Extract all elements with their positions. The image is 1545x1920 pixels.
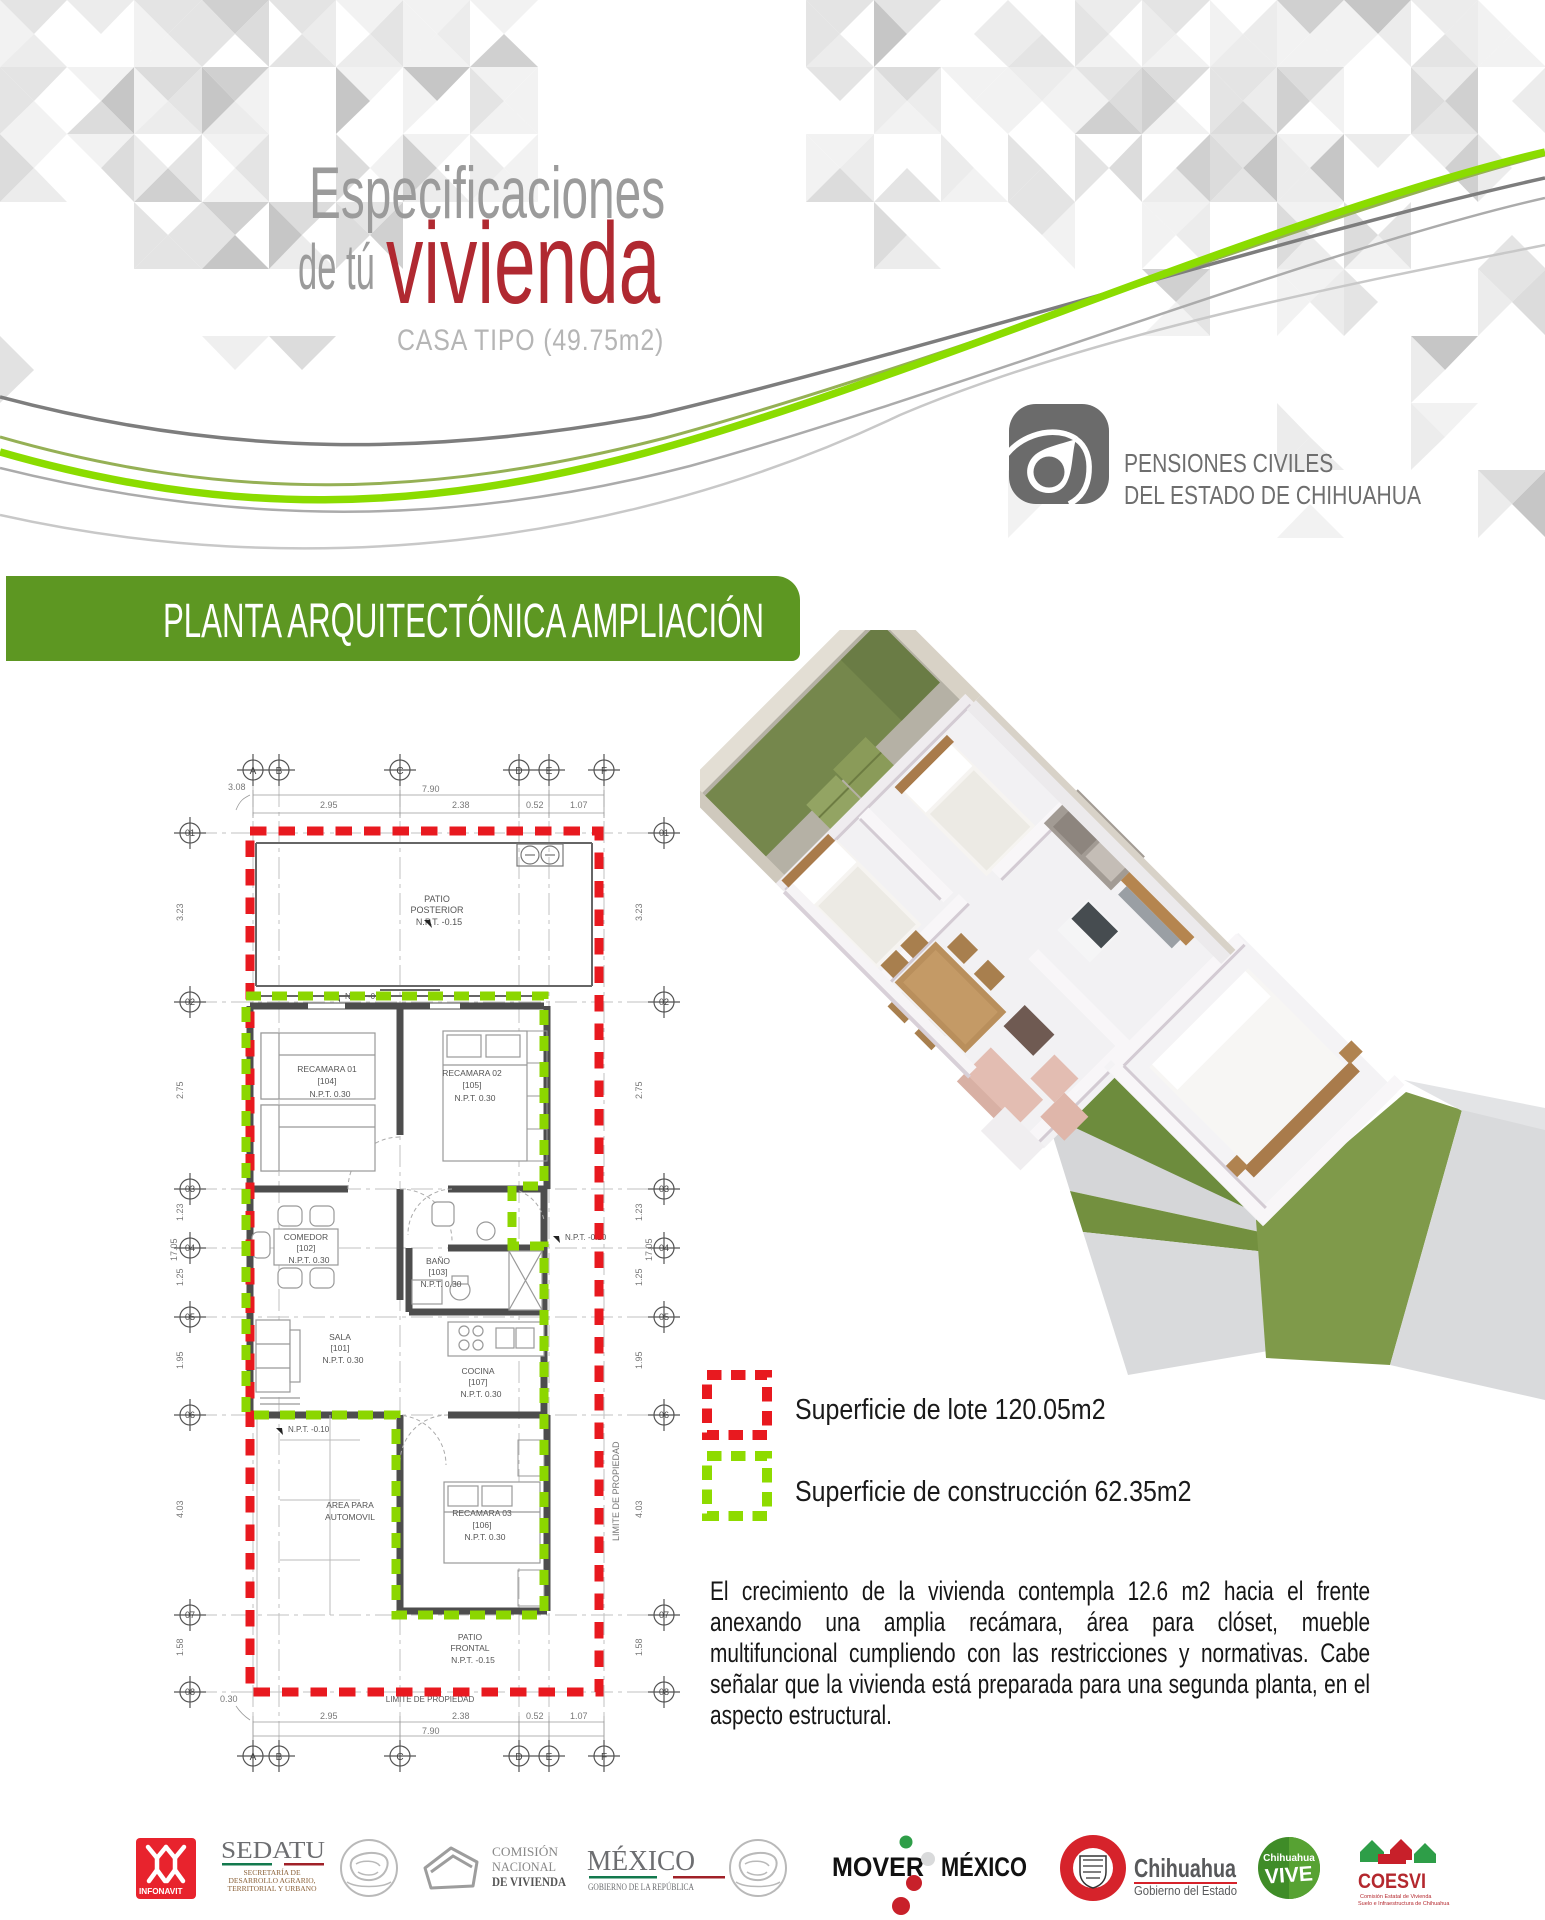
svg-text:2.95: 2.95 xyxy=(320,1711,338,1721)
svg-text:[106]: [106] xyxy=(473,1520,492,1530)
svg-text:Comisión Estatal de Vivienda: Comisión Estatal de Vivienda xyxy=(1360,1894,1432,1900)
svg-text:N.P.T. 0.30: N.P.T. 0.30 xyxy=(461,1389,502,1399)
svg-text:E: E xyxy=(546,1752,553,1763)
svg-text:05: 05 xyxy=(659,1312,669,1322)
svg-text:[103]: [103] xyxy=(429,1267,448,1277)
svg-text:Gobierno del Estado: Gobierno del Estado xyxy=(1134,1884,1237,1898)
svg-text:PATIO: PATIO xyxy=(458,1632,483,1642)
svg-text:B: B xyxy=(276,766,283,777)
svg-text:03: 03 xyxy=(659,1184,669,1194)
svg-text:TERRITORIAL Y URBANO: TERRITORIAL Y URBANO xyxy=(227,1884,317,1893)
svg-text:4.03: 4.03 xyxy=(634,1500,644,1518)
svg-text:AREA PARA: AREA PARA xyxy=(326,1500,374,1510)
svg-text:04: 04 xyxy=(185,1243,195,1253)
svg-text:0.52: 0.52 xyxy=(526,800,544,810)
svg-text:N.P.T. 0.30: N.P.T. 0.30 xyxy=(289,1255,330,1265)
svg-text:C: C xyxy=(396,766,403,777)
svg-text:NACIONAL: NACIONAL xyxy=(492,1859,556,1874)
svg-text:[107]: [107] xyxy=(469,1377,488,1387)
svg-text:17.05: 17.05 xyxy=(644,1238,654,1261)
svg-text:F: F xyxy=(601,766,607,777)
svg-text:1.07: 1.07 xyxy=(570,800,588,810)
svg-text:E: E xyxy=(546,766,553,777)
svg-text:A: A xyxy=(250,766,257,777)
svg-text:N.P.T. -0.10: N.P.T. -0.10 xyxy=(288,1425,330,1434)
svg-text:05: 05 xyxy=(185,1312,195,1322)
svg-text:3.23: 3.23 xyxy=(175,903,185,921)
svg-text:N.P.T. 0.30: N.P.T. 0.30 xyxy=(310,1089,351,1099)
svg-text:VIVE: VIVE xyxy=(1264,1862,1313,1888)
svg-text:RECAMARA 02: RECAMARA 02 xyxy=(442,1068,502,1078)
svg-text:06: 06 xyxy=(659,1410,669,1420)
svg-text:[105]: [105] xyxy=(463,1080,482,1090)
svg-text:03: 03 xyxy=(185,1184,195,1194)
svg-text:02: 02 xyxy=(659,997,669,1007)
svg-text:DE VIVIENDA: DE VIVIENDA xyxy=(492,1874,567,1889)
svg-text:[102]: [102] xyxy=(297,1243,316,1253)
svg-text:N.P.T. 0.30: N.P.T. 0.30 xyxy=(465,1532,506,1542)
svg-text:FRONTAL: FRONTAL xyxy=(450,1643,489,1653)
svg-text:1.07: 1.07 xyxy=(570,1711,588,1721)
svg-text:N.P.T. -0.15: N.P.T. -0.15 xyxy=(416,917,462,927)
svg-text:3.08: 3.08 xyxy=(228,782,246,792)
svg-text:04: 04 xyxy=(659,1243,669,1253)
svg-text:PENSIONES CIVILES: PENSIONES CIVILES xyxy=(1124,450,1333,479)
svg-text:1.58: 1.58 xyxy=(634,1638,644,1656)
svg-text:4.03: 4.03 xyxy=(175,1500,185,1518)
svg-text:01: 01 xyxy=(659,828,669,838)
svg-text:COMISIÓN: COMISIÓN xyxy=(492,1844,559,1859)
svg-text:0.30: 0.30 xyxy=(220,1694,238,1704)
svg-text:F: F xyxy=(601,1752,607,1763)
svg-text:08: 08 xyxy=(659,1687,669,1697)
svg-text:1.95: 1.95 xyxy=(175,1351,185,1369)
svg-text:Suelo e Infraestructura de Chi: Suelo e Infraestructura de Chihuahua xyxy=(1358,1901,1450,1907)
svg-text:2.75: 2.75 xyxy=(175,1081,185,1099)
svg-text:N.P.T. 0.30: N.P.T. 0.30 xyxy=(455,1093,496,1103)
svg-text:D: D xyxy=(515,766,522,777)
svg-text:A: A xyxy=(250,1752,257,1763)
svg-text:MÉXICO: MÉXICO xyxy=(941,1851,1027,1882)
svg-text:POSTERIOR: POSTERIOR xyxy=(410,905,464,915)
svg-text:1.23: 1.23 xyxy=(634,1203,644,1221)
svg-text:[101]: [101] xyxy=(331,1343,350,1353)
svg-text:1.25: 1.25 xyxy=(634,1268,644,1286)
svg-text:08: 08 xyxy=(185,1687,195,1697)
svg-text:07: 07 xyxy=(659,1610,669,1620)
svg-text:07: 07 xyxy=(185,1610,195,1620)
svg-text:7.90: 7.90 xyxy=(422,784,440,794)
svg-text:DEL ESTADO DE CHIHUAHUA: DEL ESTADO DE CHIHUAHUA xyxy=(1124,482,1421,511)
svg-text:06: 06 xyxy=(185,1410,195,1420)
svg-text:COMEDOR: COMEDOR xyxy=(284,1232,328,1242)
svg-text:01: 01 xyxy=(185,828,195,838)
svg-text:N.P.T. 0.30: N.P.T. 0.30 xyxy=(421,1279,462,1289)
svg-text:2.38: 2.38 xyxy=(452,1711,470,1721)
svg-text:2.38: 2.38 xyxy=(452,800,470,810)
svg-text:2.75: 2.75 xyxy=(634,1081,644,1099)
svg-text:1.95: 1.95 xyxy=(634,1351,644,1369)
svg-text:[104]: [104] xyxy=(318,1076,337,1086)
svg-text:AUTOMOVIL: AUTOMOVIL xyxy=(325,1512,375,1522)
svg-text:RECAMARA 03: RECAMARA 03 xyxy=(452,1508,512,1518)
svg-text:N.P.T. 0.30: N.P.T. 0.30 xyxy=(323,1355,364,1365)
svg-text:Chihuahua: Chihuahua xyxy=(1134,1853,1236,1883)
svg-text:N.P.T. -0.15: N.P.T. -0.15 xyxy=(451,1655,495,1665)
svg-text:SALA: SALA xyxy=(329,1332,351,1342)
svg-text:1.58: 1.58 xyxy=(175,1638,185,1656)
svg-text:COESVI: COESVI xyxy=(1358,1870,1426,1893)
svg-text:GOBIERNO DE LA REPÚBLICA: GOBIERNO DE LA REPÚBLICA xyxy=(588,1881,694,1893)
svg-text:SEDATU: SEDATU xyxy=(221,1838,325,1864)
svg-text:INFONAVIT: INFONAVIT xyxy=(139,1887,183,1896)
svg-text:C: C xyxy=(396,1752,403,1763)
svg-text:B: B xyxy=(276,1752,283,1763)
svg-text:02: 02 xyxy=(185,997,195,1007)
svg-text:1.25: 1.25 xyxy=(175,1268,185,1286)
svg-text:17.05: 17.05 xyxy=(169,1238,179,1261)
svg-text:LIMITE DE PROPIEDAD: LIMITE DE PROPIEDAD xyxy=(611,1441,621,1541)
svg-text:RECAMARA 01: RECAMARA 01 xyxy=(297,1064,357,1074)
svg-text:COCINA: COCINA xyxy=(461,1366,494,1376)
svg-text:MÉXICO: MÉXICO xyxy=(587,1846,695,1877)
svg-text:0.52: 0.52 xyxy=(526,1711,544,1721)
svg-text:3.23: 3.23 xyxy=(634,903,644,921)
svg-text:7.90: 7.90 xyxy=(422,1726,440,1736)
svg-text:BAÑO: BAÑO xyxy=(426,1256,450,1266)
svg-text:D: D xyxy=(515,1752,522,1763)
svg-text:PATIO: PATIO xyxy=(424,894,450,904)
svg-text:1.23: 1.23 xyxy=(175,1203,185,1221)
svg-text:2.95: 2.95 xyxy=(320,800,338,810)
